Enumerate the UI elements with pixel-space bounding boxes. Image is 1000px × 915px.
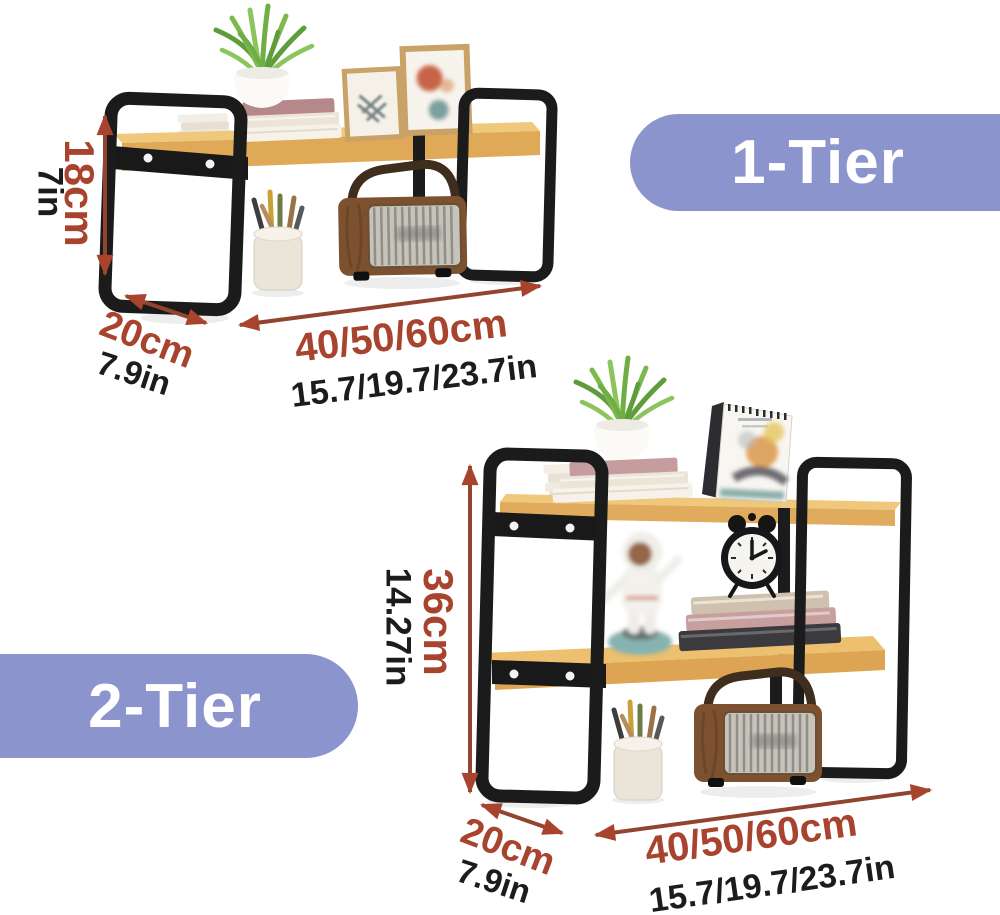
alarm-clock	[721, 513, 783, 596]
astronaut-figurine	[606, 532, 678, 655]
tier2-badge: 2-Tier	[0, 654, 358, 758]
tier2-badge-label: 2-Tier	[88, 671, 262, 742]
tier1-badge: 1-Tier	[630, 114, 1000, 211]
shelf-unit-1	[104, 6, 552, 325]
unit2-height-cm-label: 36cm	[417, 568, 459, 675]
pencil-cup	[254, 192, 302, 290]
unit1-height-in-label: 7in	[33, 167, 68, 218]
tier1-badge-label: 1-Tier	[731, 127, 905, 198]
shelf-unit-2	[470, 358, 930, 835]
vintage-radio	[337, 164, 467, 281]
unit2-height-in-label: 14.27in	[381, 568, 416, 687]
potted-plant	[216, 6, 312, 108]
book-stack-top	[551, 457, 693, 503]
product-dimension-infographic: 1-Tier 2-Tier 18cm 7in 20cm 7.9in 40/50/…	[0, 0, 1000, 915]
desk-calendar	[702, 402, 792, 502]
picture-frame-small	[344, 69, 401, 140]
book-stack-middle	[677, 590, 842, 651]
pencil-cup	[614, 702, 662, 800]
potted-plant	[576, 358, 672, 460]
